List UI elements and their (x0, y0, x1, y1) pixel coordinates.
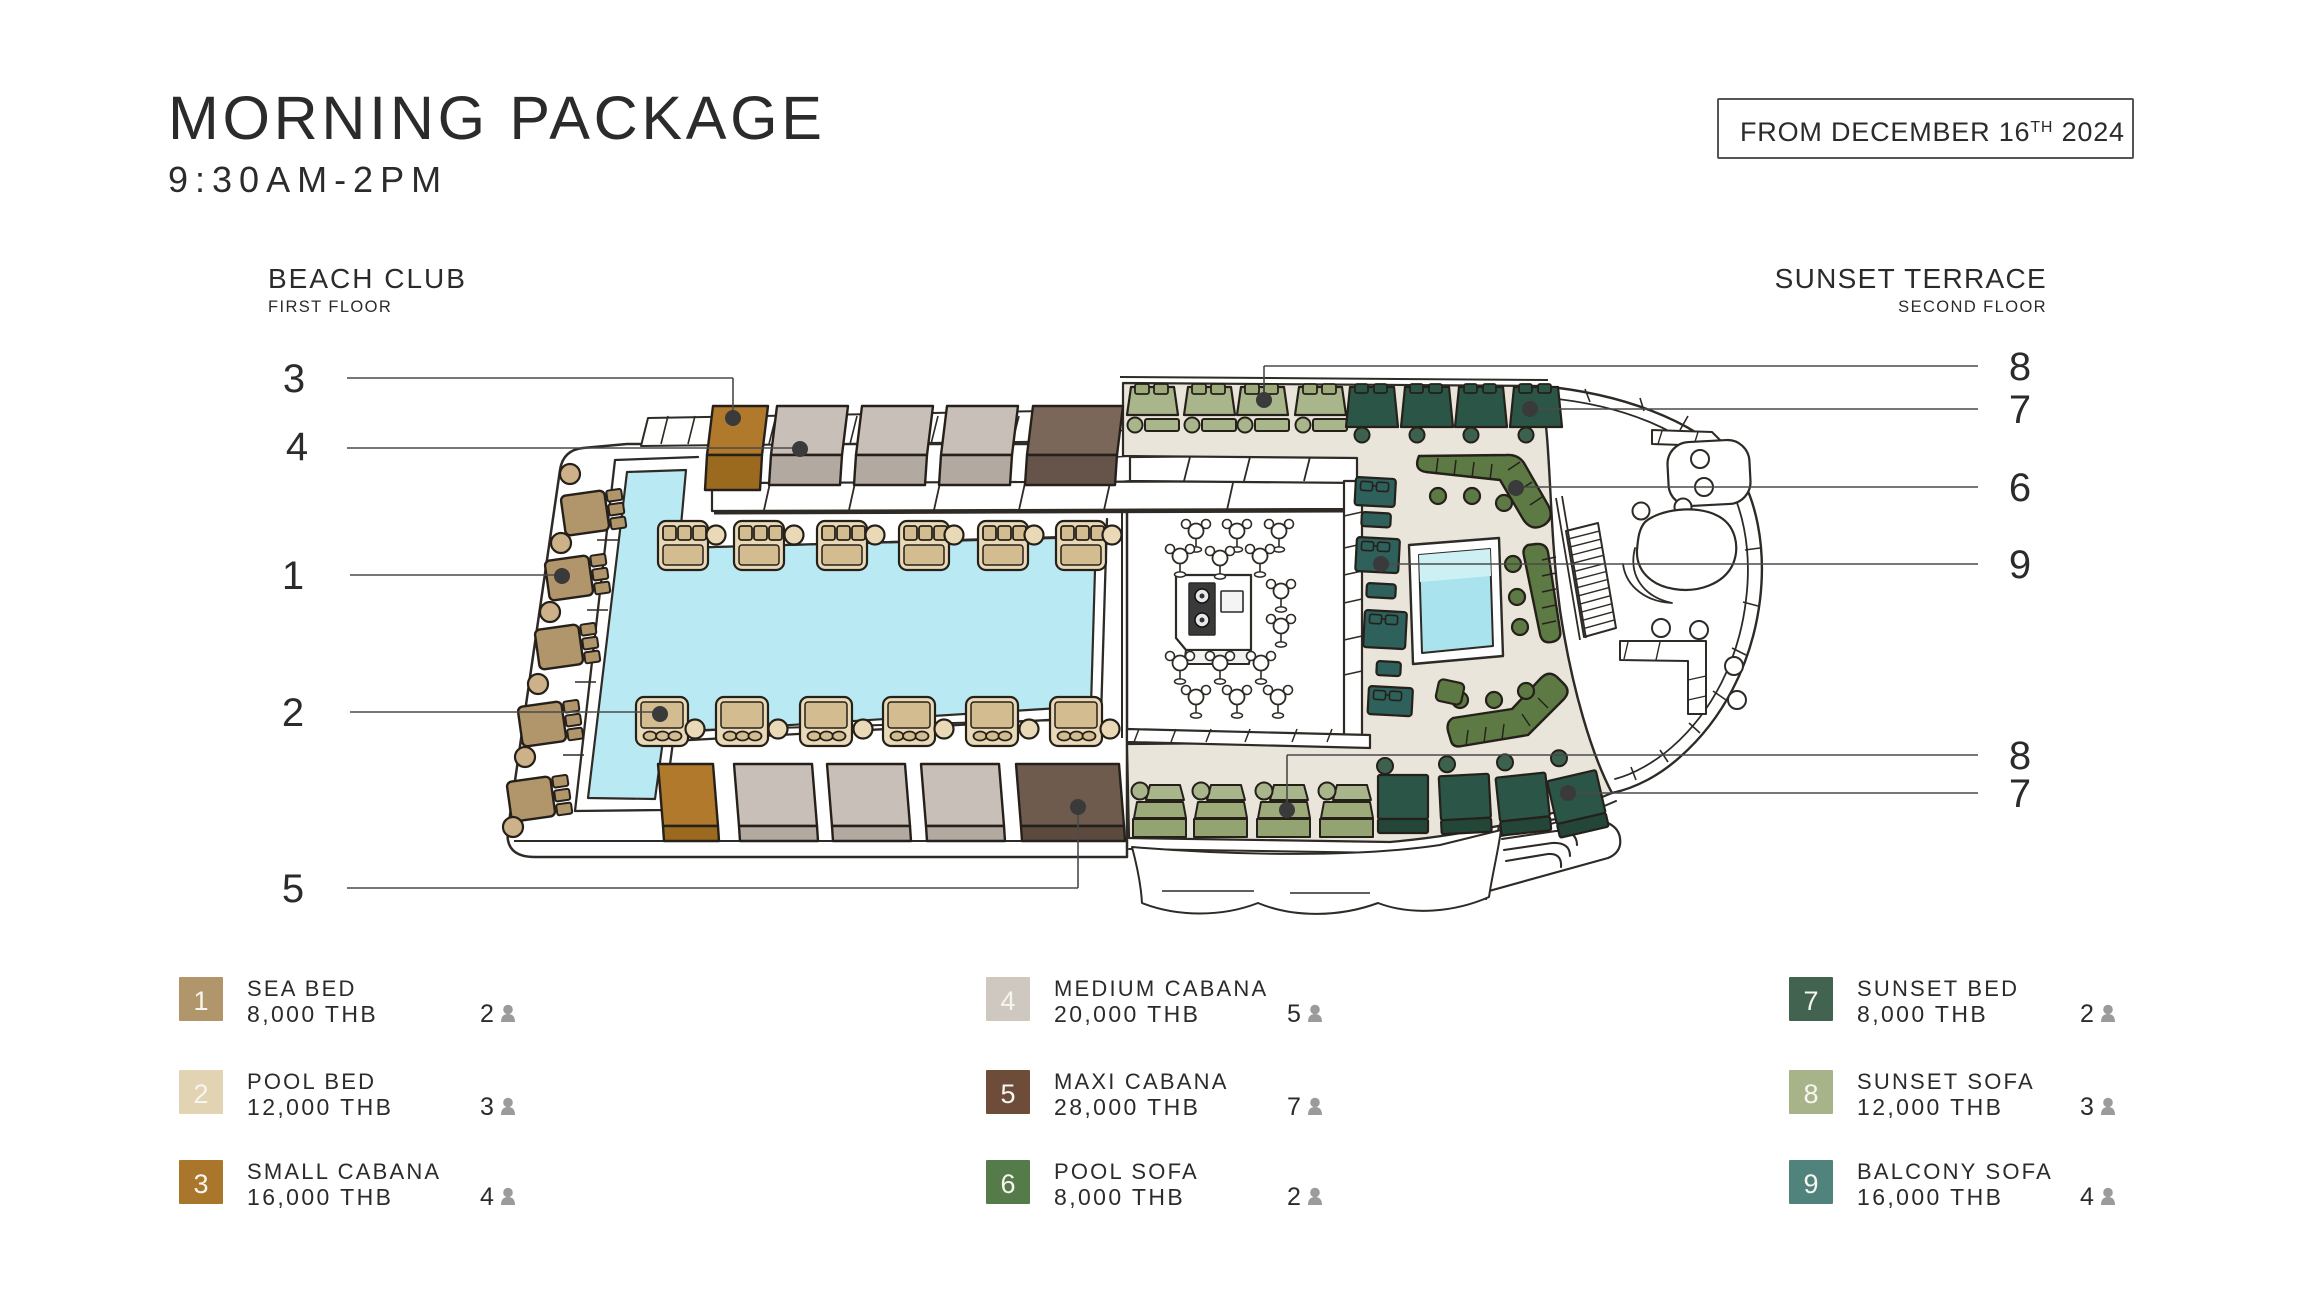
svg-text:2: 2 (282, 691, 304, 735)
svg-text:5: 5 (1287, 1000, 1301, 1028)
svg-text:16,000 THB: 16,000 THB (1857, 1184, 2003, 1210)
svg-text:BEACH CLUB: BEACH CLUB (268, 263, 467, 294)
svg-text:6: 6 (2009, 466, 2031, 510)
svg-text:SUNSET TERRACE: SUNSET TERRACE (1775, 263, 2047, 294)
svg-text:MEDIUM CABANA: MEDIUM CABANA (1054, 976, 1268, 1001)
svg-text:6: 6 (1000, 1169, 1015, 1199)
svg-text:5: 5 (1000, 1079, 1015, 1109)
svg-text:8: 8 (1803, 1079, 1818, 1109)
svg-text:POOL SOFA: POOL SOFA (1054, 1159, 1199, 1184)
svg-text:2: 2 (193, 1079, 208, 1109)
svg-text:7: 7 (1803, 986, 1818, 1016)
svg-text:5: 5 (282, 867, 304, 911)
svg-text:FIRST FLOOR: FIRST FLOOR (268, 298, 392, 316)
svg-text:20,000 THB: 20,000 THB (1054, 1001, 1200, 1027)
svg-text:9:30AM-2PM: 9:30AM-2PM (168, 159, 448, 200)
svg-text:9: 9 (1803, 1169, 1818, 1199)
svg-text:4: 4 (286, 425, 308, 469)
svg-text:12,000 THB: 12,000 THB (1857, 1094, 2003, 1120)
svg-text:7: 7 (2009, 772, 2031, 816)
svg-text:3: 3 (2080, 1093, 2094, 1121)
svg-text:7: 7 (2009, 388, 2031, 432)
svg-text:4: 4 (2080, 1183, 2094, 1211)
svg-text:MORNING PACKAGE: MORNING PACKAGE (168, 84, 826, 152)
svg-text:2: 2 (1287, 1183, 1301, 1211)
svg-text:SEA BED: SEA BED (247, 976, 357, 1001)
svg-text:8,000 THB: 8,000 THB (247, 1001, 378, 1027)
svg-text:SUNSET SOFA: SUNSET SOFA (1857, 1069, 2035, 1094)
svg-text:SUNSET BED: SUNSET BED (1857, 976, 2019, 1001)
svg-text:1: 1 (282, 554, 304, 598)
svg-text:12,000 THB: 12,000 THB (247, 1094, 393, 1120)
svg-text:2: 2 (480, 1000, 494, 1028)
svg-text:BALCONY SOFA: BALCONY SOFA (1857, 1159, 2053, 1184)
svg-text:8,000 THB: 8,000 THB (1054, 1184, 1185, 1210)
svg-text:POOL BED: POOL BED (247, 1069, 376, 1094)
svg-text:9: 9 (2009, 543, 2031, 587)
svg-text:FROM DECEMBER 16TH 2024: FROM DECEMBER 16TH 2024 (1740, 117, 2125, 147)
svg-text:2: 2 (2080, 1000, 2094, 1028)
svg-text:MAXI CABANA: MAXI CABANA (1054, 1069, 1229, 1094)
svg-text:1: 1 (193, 986, 208, 1016)
svg-text:4: 4 (1000, 986, 1015, 1016)
svg-text:SMALL CABANA: SMALL CABANA (247, 1159, 441, 1184)
svg-text:28,000 THB: 28,000 THB (1054, 1094, 1200, 1120)
svg-text:16,000 THB: 16,000 THB (247, 1184, 393, 1210)
svg-text:SECOND FLOOR: SECOND FLOOR (1898, 298, 2047, 316)
svg-text:8,000 THB: 8,000 THB (1857, 1001, 1988, 1027)
svg-text:3: 3 (283, 357, 305, 401)
svg-text:7: 7 (1287, 1093, 1301, 1121)
svg-text:8: 8 (2009, 345, 2031, 389)
svg-text:3: 3 (193, 1169, 208, 1199)
svg-text:4: 4 (480, 1183, 494, 1211)
svg-text:3: 3 (480, 1093, 494, 1121)
